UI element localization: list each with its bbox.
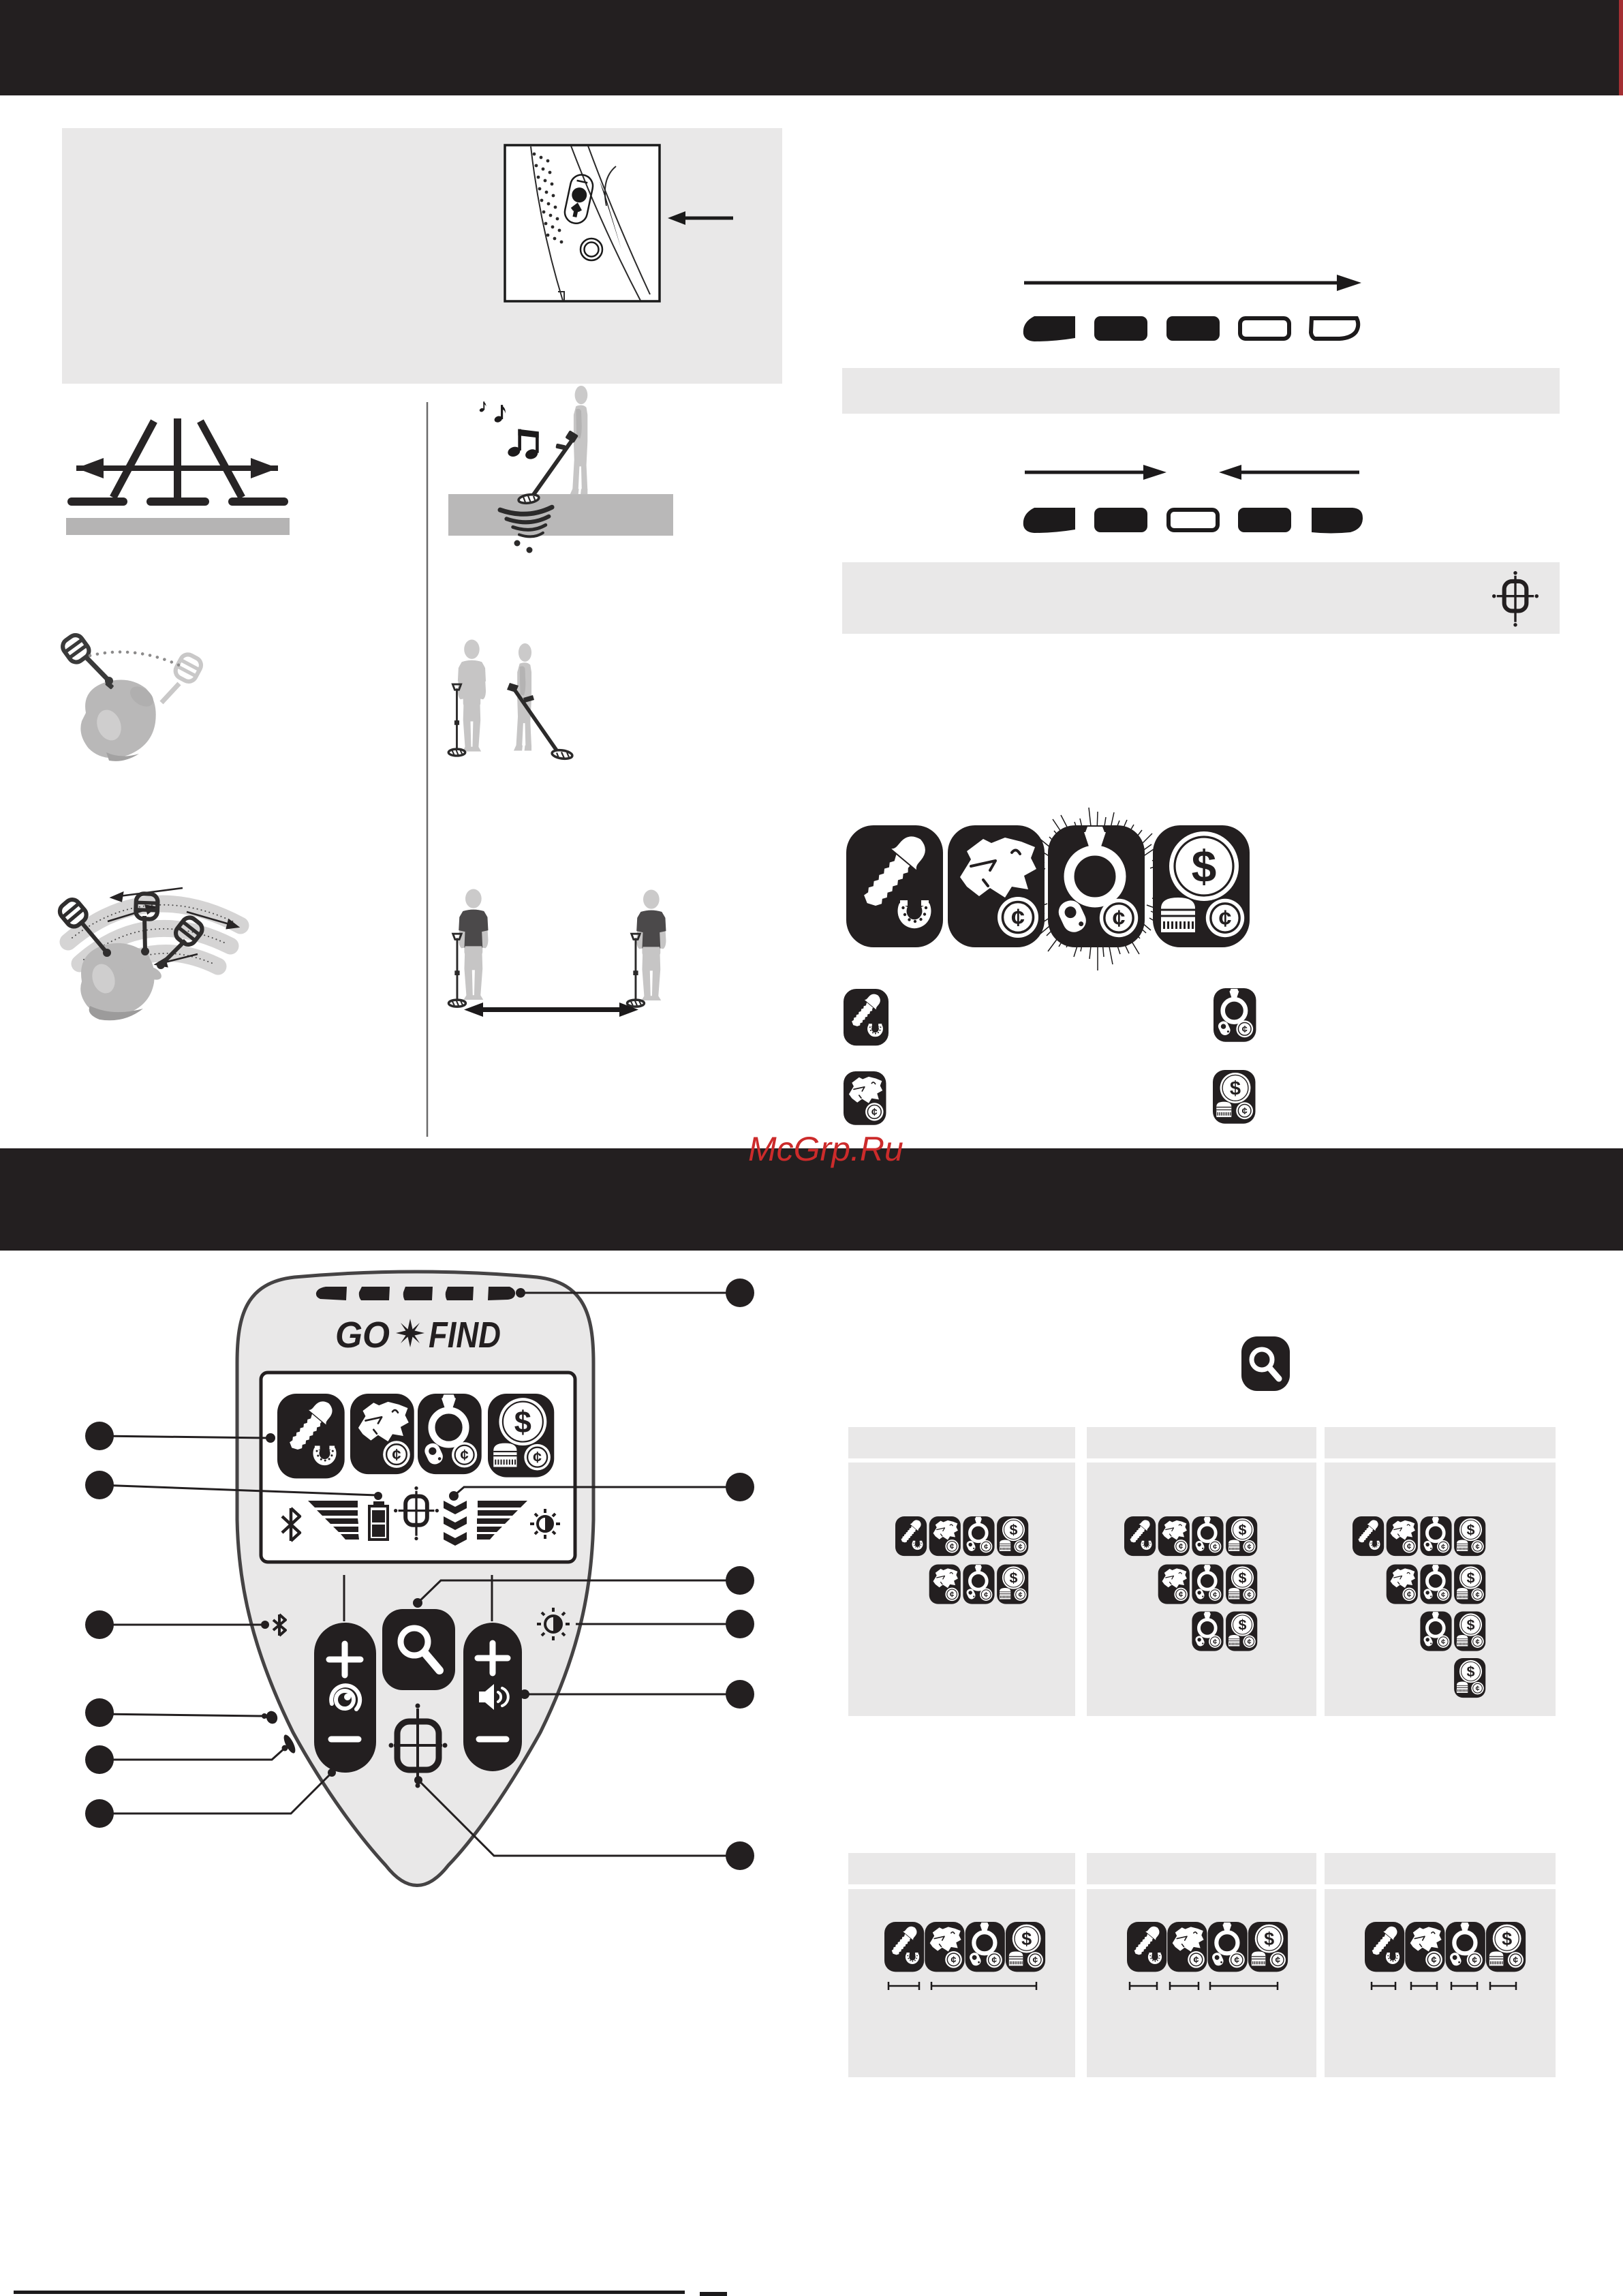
svg-text:FIND: FIND bbox=[429, 1315, 501, 1356]
svg-text:McGrp.Ru: McGrp.Ru bbox=[748, 1130, 903, 1168]
svg-text:GO: GO bbox=[335, 1315, 390, 1356]
